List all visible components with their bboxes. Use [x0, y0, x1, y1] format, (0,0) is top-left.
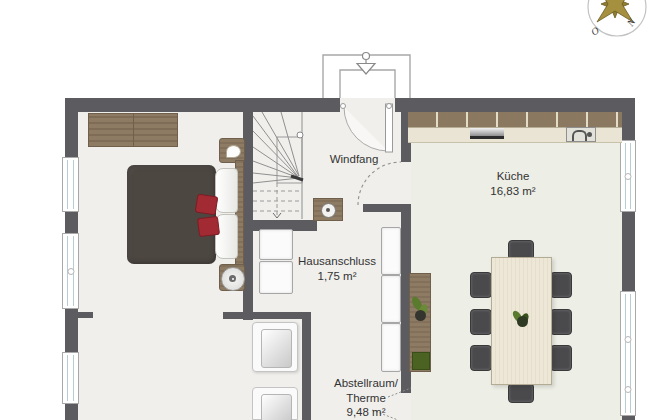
dining-chair [550, 309, 572, 335]
compass-letter-west: O [589, 24, 601, 37]
dresser [88, 113, 178, 147]
sink-faucet [572, 130, 587, 141]
room-label-kueche: Küche 16,83 m² [490, 169, 535, 198]
decor-dish [226, 145, 241, 158]
window-handle [625, 386, 632, 393]
window [62, 352, 79, 404]
tall-cabinet [381, 323, 401, 372]
utility-box [259, 229, 293, 260]
abstellraum-area: 9,48 m² [334, 405, 398, 420]
bed-cushion-red [197, 216, 220, 237]
utility-box [259, 261, 293, 294]
window-glass [67, 160, 74, 209]
window-glass [67, 355, 74, 401]
appliance-washer [252, 322, 298, 372]
appliance-door [261, 329, 292, 368]
window [62, 233, 79, 309]
window-handle [625, 173, 632, 180]
tall-cabinet [381, 275, 401, 323]
appliance-door [261, 394, 292, 420]
appliance-washer [252, 387, 298, 420]
room-label-abstellraum: Abstellraum/ Therme 9,48 m² [334, 376, 398, 420]
abstellraum-name-line1: Abstellraum/ [334, 376, 398, 391]
wall-top-left [65, 98, 340, 112]
compass-star-major [597, 0, 633, 22]
window-handle [67, 268, 74, 275]
tall-cabinet [381, 227, 401, 275]
wall-top-right [395, 98, 635, 112]
window [620, 291, 636, 416]
kitchen-wall-cabinets [408, 112, 622, 128]
bed [127, 165, 216, 264]
floor-plan: O N [0, 0, 650, 420]
entrance-canopy [323, 55, 410, 98]
window-handle [625, 336, 632, 343]
window [62, 157, 79, 212]
wall-hausanschluss-bottom [223, 312, 303, 319]
plant-pot [517, 316, 528, 327]
table-lamp-dot [232, 278, 234, 280]
plant-box [412, 352, 430, 370]
room-label-windfang: Windfang [330, 152, 379, 167]
dining-chair [470, 309, 492, 335]
window [620, 140, 636, 212]
hall-cabinet [313, 198, 343, 221]
entrance-arrow-icon [357, 53, 375, 75]
windfang-name: Windfang [330, 153, 379, 165]
hausanschluss-name: Hausanschluss [298, 254, 376, 269]
dining-chair [470, 345, 492, 371]
dresser-divider [133, 114, 134, 146]
compass-rose: O N [588, 0, 646, 38]
kueche-area: 16,83 m² [490, 184, 535, 199]
entrance-opening [340, 98, 395, 112]
kueche-name: Küche [490, 169, 535, 184]
bed-pillow [215, 168, 238, 213]
nightstand [219, 264, 245, 291]
room-label-hausanschluss: Hausanschluss 1,75 m² [298, 254, 376, 283]
kitchen-shelf [409, 273, 431, 372]
dining-chair [508, 383, 534, 403]
hausanschluss-area: 1,75 m² [298, 269, 376, 284]
compass-letter-north: N [624, 15, 638, 29]
wall-abstellraum-left [302, 312, 311, 420]
sink-handle [587, 132, 592, 137]
window-glass [625, 294, 631, 413]
cooktop [470, 128, 504, 139]
plant-pot [415, 310, 426, 321]
dining-chair [550, 345, 572, 371]
compass-star-minor [601, 0, 629, 18]
hall-cabinet-bowl-dot [326, 208, 330, 212]
dining-chair [550, 272, 572, 298]
dining-table [491, 257, 552, 385]
abstellraum-name-line2: Therme [334, 391, 398, 406]
dining-chair [470, 272, 492, 298]
bed-cushion-red [195, 193, 219, 215]
kitchen-sink [566, 127, 596, 142]
wall-left-stub [78, 312, 93, 318]
